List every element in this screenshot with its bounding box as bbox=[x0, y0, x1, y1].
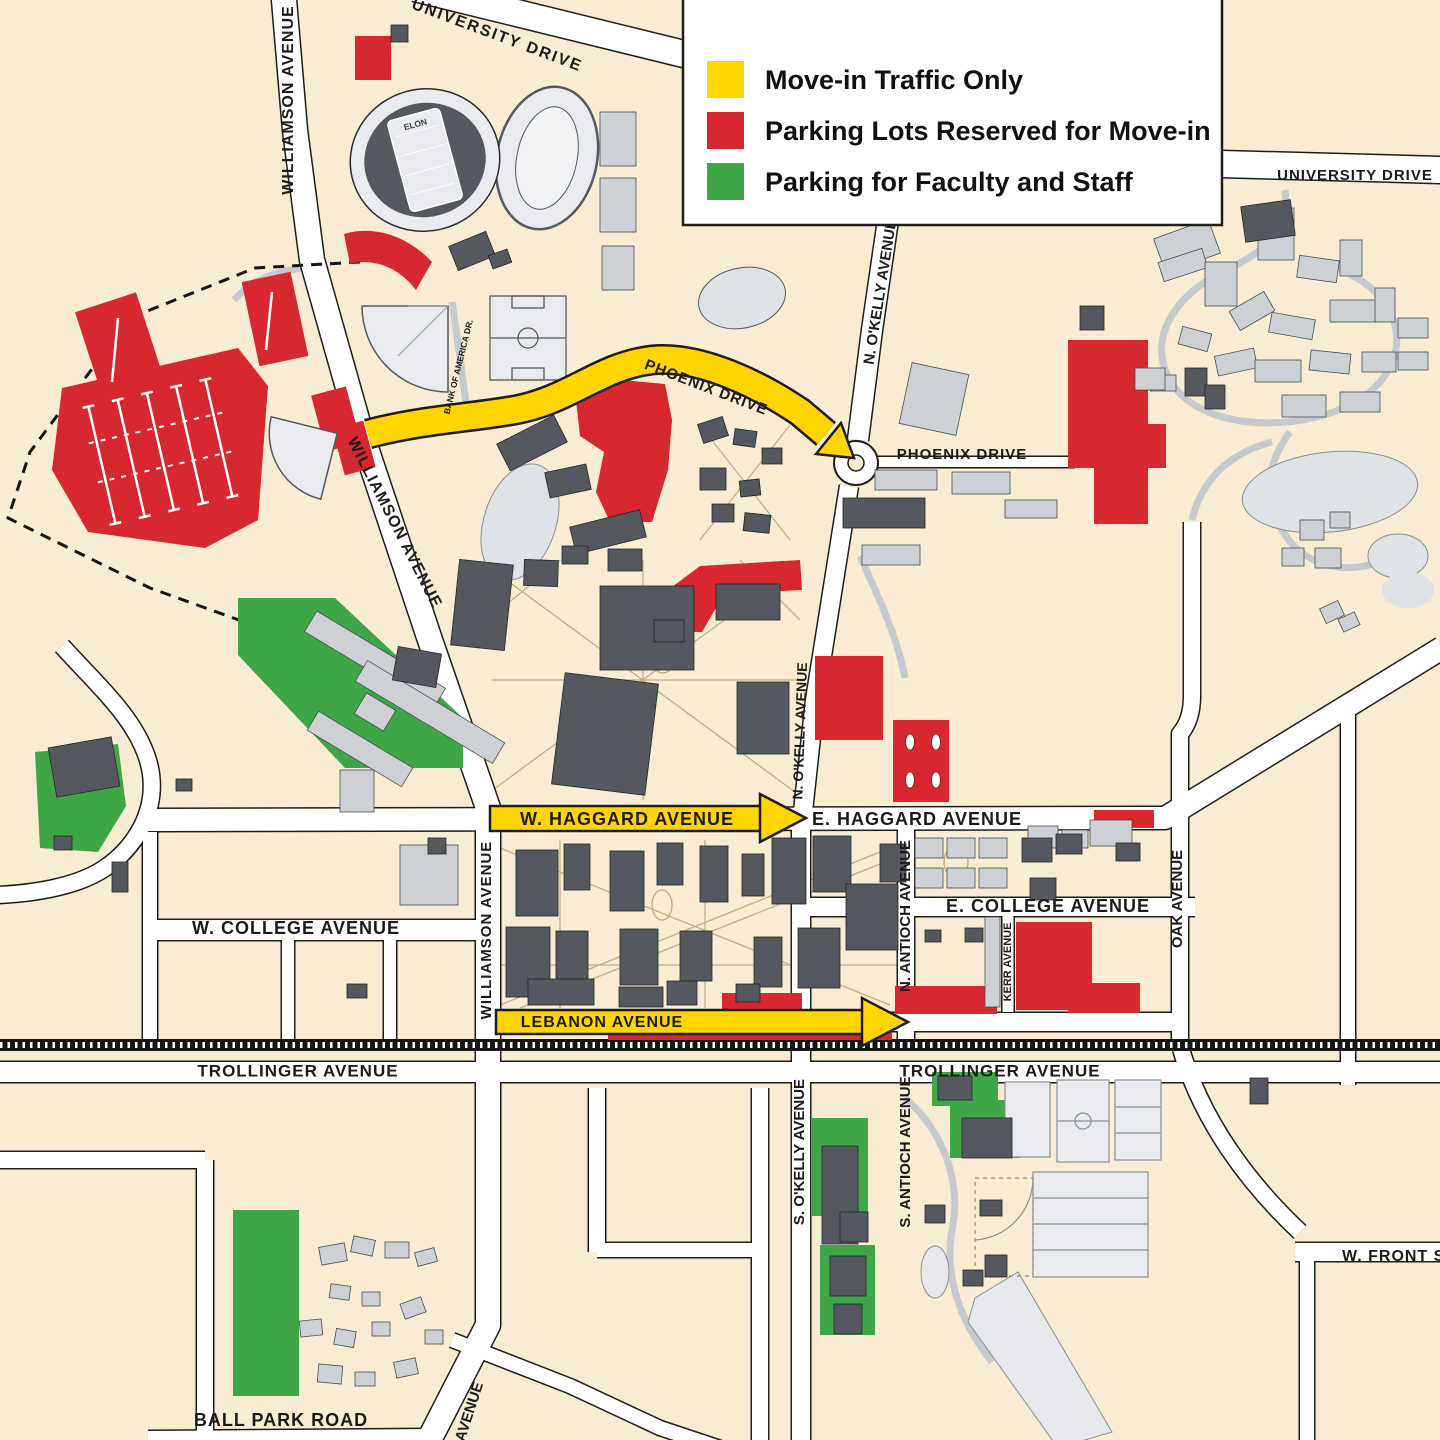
legend: Move-in Traffic Only Parking Lots Reserv… bbox=[683, 0, 1222, 225]
building bbox=[528, 979, 594, 1005]
building bbox=[451, 559, 514, 650]
building bbox=[798, 928, 840, 988]
building bbox=[372, 1322, 390, 1336]
building bbox=[742, 854, 764, 896]
building bbox=[979, 868, 1007, 888]
building bbox=[925, 930, 941, 942]
building bbox=[600, 112, 636, 166]
building bbox=[1330, 512, 1350, 528]
building bbox=[712, 504, 734, 522]
building bbox=[1282, 548, 1304, 566]
building bbox=[716, 584, 780, 620]
building bbox=[1205, 262, 1237, 306]
building bbox=[1250, 1078, 1268, 1104]
road-label-w-college: W. COLLEGE AVENUE bbox=[192, 918, 400, 938]
building bbox=[1330, 300, 1376, 322]
building bbox=[654, 620, 684, 642]
campus-move-in-map: ELON UNIVERSITY DRIVE UNIVERSITY DRIVE bbox=[0, 0, 1440, 1440]
building bbox=[1309, 350, 1351, 374]
building bbox=[112, 862, 128, 892]
building bbox=[355, 1372, 375, 1386]
building bbox=[564, 844, 590, 890]
legend-swatch-faculty-staff bbox=[707, 163, 744, 200]
building bbox=[1005, 500, 1057, 518]
building bbox=[733, 429, 757, 448]
building bbox=[813, 836, 851, 892]
building bbox=[334, 1328, 356, 1347]
building bbox=[340, 770, 374, 812]
building bbox=[772, 838, 806, 904]
building bbox=[840, 1212, 868, 1242]
building bbox=[875, 470, 937, 490]
map-canvas: ELON UNIVERSITY DRIVE UNIVERSITY DRIVE bbox=[0, 0, 1440, 1440]
building bbox=[899, 363, 969, 436]
building bbox=[1090, 820, 1132, 846]
building bbox=[362, 1292, 380, 1306]
legend-swatch-move-in-traffic bbox=[707, 61, 744, 98]
building bbox=[610, 851, 644, 911]
road-label-trollinger-e: TROLLINGER AVENUE bbox=[899, 1061, 1100, 1080]
building bbox=[425, 1330, 443, 1344]
road-label-trollinger-w: TROLLINGER AVENUE bbox=[197, 1061, 398, 1080]
building bbox=[1080, 306, 1104, 330]
railroad bbox=[0, 1039, 1440, 1051]
building bbox=[985, 917, 1000, 1007]
building bbox=[830, 1256, 866, 1296]
road-label-n-antioch: N. ANTIOCH AVENUE bbox=[897, 840, 914, 992]
building bbox=[602, 246, 634, 290]
road-label-williamson-avenue-n: WILLIAMSON AVENUE bbox=[280, 5, 297, 194]
building bbox=[680, 931, 712, 981]
building bbox=[1056, 834, 1082, 854]
building bbox=[1241, 200, 1296, 243]
building bbox=[947, 868, 975, 888]
road-label-e-college: E. COLLEGE AVENUE bbox=[946, 896, 1150, 916]
building bbox=[385, 1242, 409, 1258]
building bbox=[700, 468, 726, 490]
building bbox=[1282, 395, 1326, 417]
building bbox=[1300, 520, 1324, 540]
road-label-phoenix-drive-e: PHOENIX DRIVE bbox=[897, 446, 1028, 463]
building bbox=[329, 1284, 351, 1301]
building bbox=[834, 1304, 862, 1334]
building bbox=[737, 682, 789, 754]
building bbox=[1135, 368, 1165, 390]
building bbox=[1205, 385, 1225, 409]
building bbox=[952, 472, 1010, 494]
building bbox=[48, 737, 120, 797]
building bbox=[347, 984, 367, 998]
building bbox=[392, 646, 441, 687]
building bbox=[516, 850, 558, 916]
building bbox=[391, 25, 408, 42]
building bbox=[739, 479, 761, 497]
building bbox=[743, 513, 771, 534]
building bbox=[1116, 843, 1140, 861]
building bbox=[428, 838, 446, 854]
building bbox=[1022, 838, 1052, 862]
building bbox=[925, 1205, 945, 1223]
building bbox=[1255, 360, 1301, 382]
building bbox=[1185, 368, 1207, 396]
building bbox=[524, 559, 559, 586]
building bbox=[915, 838, 943, 858]
building bbox=[754, 937, 782, 987]
building bbox=[985, 1255, 1007, 1277]
road-label-kerr-avenue: KERR AVENUE bbox=[1002, 923, 1014, 1002]
road-label-oak-avenue: OAK AVENUE bbox=[1169, 850, 1186, 948]
building bbox=[980, 1200, 1002, 1216]
road-label-w-haggard: W. HAGGARD AVENUE bbox=[520, 809, 734, 829]
legend-label-move-in-traffic: Move-in Traffic Only bbox=[765, 65, 1023, 95]
road-label-lebanon: LEBANON AVENUE bbox=[521, 1014, 683, 1031]
road-label-williamson-avenue-s: WILLIAMSON AVENUE bbox=[478, 841, 495, 1020]
building bbox=[1340, 392, 1380, 412]
road-label-ball-park: BALL PARK ROAD bbox=[194, 1410, 368, 1430]
building bbox=[1398, 318, 1428, 338]
building bbox=[556, 931, 588, 981]
building bbox=[846, 884, 898, 950]
building bbox=[736, 984, 760, 1002]
building bbox=[843, 498, 925, 528]
building bbox=[317, 1364, 342, 1384]
building bbox=[762, 448, 782, 464]
building bbox=[915, 868, 943, 888]
building bbox=[620, 929, 658, 985]
building bbox=[562, 546, 588, 564]
building bbox=[619, 987, 663, 1007]
building bbox=[947, 838, 975, 858]
road-label-university-drive-ne: UNIVERSITY DRIVE bbox=[1277, 167, 1433, 184]
building bbox=[54, 836, 72, 850]
legend-label-reserved-parking: Parking Lots Reserved for Move-in bbox=[765, 116, 1211, 146]
building bbox=[1340, 240, 1362, 276]
building bbox=[979, 838, 1007, 858]
building bbox=[700, 846, 728, 902]
building bbox=[552, 673, 659, 796]
building bbox=[667, 981, 697, 1005]
building bbox=[600, 178, 636, 232]
building bbox=[1315, 548, 1341, 568]
building bbox=[862, 545, 920, 565]
building bbox=[299, 1319, 323, 1337]
building bbox=[962, 1118, 1012, 1158]
legend-swatch-reserved-parking bbox=[707, 112, 744, 149]
road-label-s-antioch: S. ANTIOCH AVENUE bbox=[897, 1076, 914, 1227]
building bbox=[608, 549, 642, 571]
road-label-w-front: W. FRONT STREET bbox=[1342, 1248, 1440, 1265]
legend-label-faculty-staff: Parking for Faculty and Staff bbox=[765, 167, 1134, 197]
road-label-e-haggard: E. HAGGARD AVENUE bbox=[812, 809, 1022, 829]
building bbox=[657, 843, 683, 885]
building bbox=[176, 779, 192, 791]
building bbox=[1375, 288, 1395, 322]
building bbox=[963, 1270, 983, 1286]
building bbox=[965, 928, 983, 942]
road-label-s-okelly: S. O'KELLY AVENUE bbox=[791, 1079, 808, 1225]
building bbox=[1398, 352, 1428, 370]
building bbox=[1362, 352, 1396, 372]
